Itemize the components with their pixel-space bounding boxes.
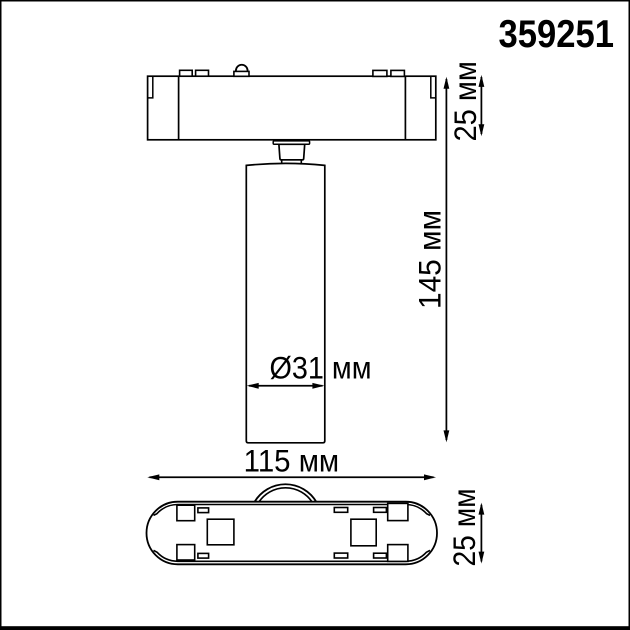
svg-text:25 мм: 25 мм [447,61,483,142]
svg-text:115 мм: 115 мм [244,443,340,479]
svg-text:25 мм: 25 мм [446,489,482,567]
svg-text:145 мм: 145 мм [412,210,448,309]
svg-text:Ø31 мм: Ø31 мм [270,349,372,385]
svg-text:359251: 359251 [499,13,615,56]
